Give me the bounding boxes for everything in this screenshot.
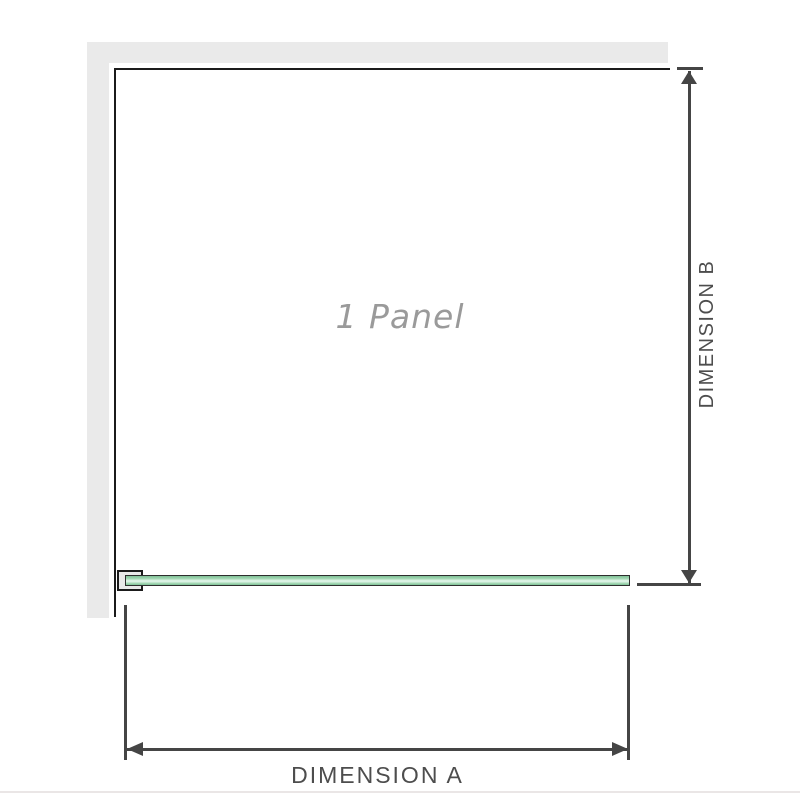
glass-panel [125,575,630,586]
dim-a-arrow-left-icon [127,742,143,756]
dim-a-line [127,748,628,751]
panel-outline [114,68,670,617]
dim-b-label: DIMENSION B [695,254,719,414]
dim-b-tick-bottom [637,583,701,586]
dim-b-line [688,71,691,584]
bottom-divider [0,791,800,793]
wall-left [87,42,109,618]
panel-label: 1 Panel [250,296,550,338]
dim-a-arrow-right-icon [612,742,628,756]
shower-panel-dimension-diagram: 1 Panel DIMENSION B DIMENSION A [0,0,800,800]
dim-a-label: DIMENSION A [127,762,628,788]
dim-b-tick-top [677,67,703,70]
wall-top [87,42,668,63]
dim-a-extension-left [124,605,127,760]
dim-b-arrow-down-icon [681,570,697,583]
dim-a-extension-right [627,605,630,760]
dim-b-arrow-up-icon [681,71,697,84]
